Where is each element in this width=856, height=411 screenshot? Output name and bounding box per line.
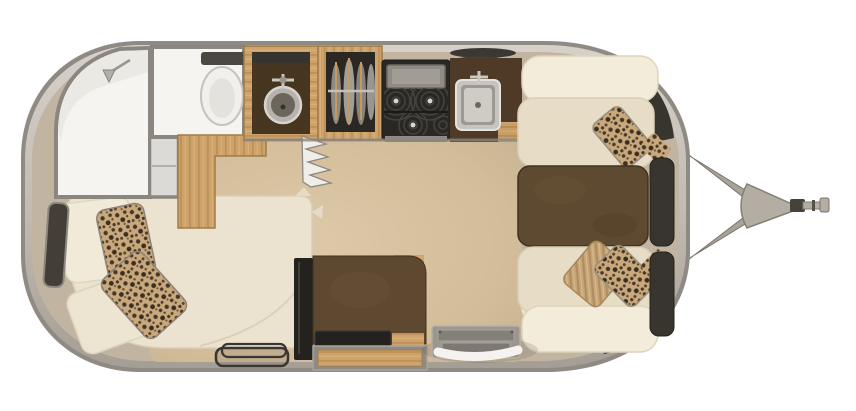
table-grain-1 [534, 176, 586, 204]
storage-drawer [313, 346, 427, 370]
kitchen-sink [456, 71, 500, 130]
toilet [201, 52, 246, 125]
table-grain-2 [593, 213, 637, 237]
burner-knob-2 [428, 99, 433, 104]
wardrobe [318, 46, 382, 140]
trailer-floorplan [0, 0, 856, 411]
dinette [518, 56, 674, 354]
dinette-bench-bottom [518, 239, 658, 352]
hitch-jack-handle [820, 198, 829, 212]
headrest-panel-upper [650, 158, 674, 246]
tv-panel [294, 258, 313, 360]
cooktop [377, 60, 452, 142]
bench-bottom-back-cushion [522, 306, 658, 352]
vanity [244, 46, 318, 140]
sink-drain [475, 102, 481, 108]
headrest-panel-lower [650, 252, 674, 336]
dinette-bench-top [518, 56, 658, 170]
burner-knob-3 [411, 123, 416, 128]
bath-cabinet [150, 137, 178, 197]
toilet-room [152, 47, 246, 137]
toilet-tank [201, 52, 246, 65]
burner-knob-1 [394, 99, 399, 104]
entry-step [422, 326, 538, 363]
galley-counter [450, 58, 522, 142]
cabinet-grain [330, 272, 390, 308]
vanity-shelf [252, 52, 310, 63]
bench-top-back-cushion [522, 56, 658, 102]
vessel-sink-drain [281, 105, 286, 110]
hitch-assembly [680, 148, 829, 266]
toilet-seat [209, 78, 235, 118]
bedside-mat [216, 344, 288, 366]
media-cabinet [294, 255, 427, 370]
vanity-faucet-base [280, 77, 287, 84]
step-tread-upper [438, 330, 514, 341]
hitch-pin [812, 200, 815, 211]
range-tray-inner [392, 69, 440, 84]
